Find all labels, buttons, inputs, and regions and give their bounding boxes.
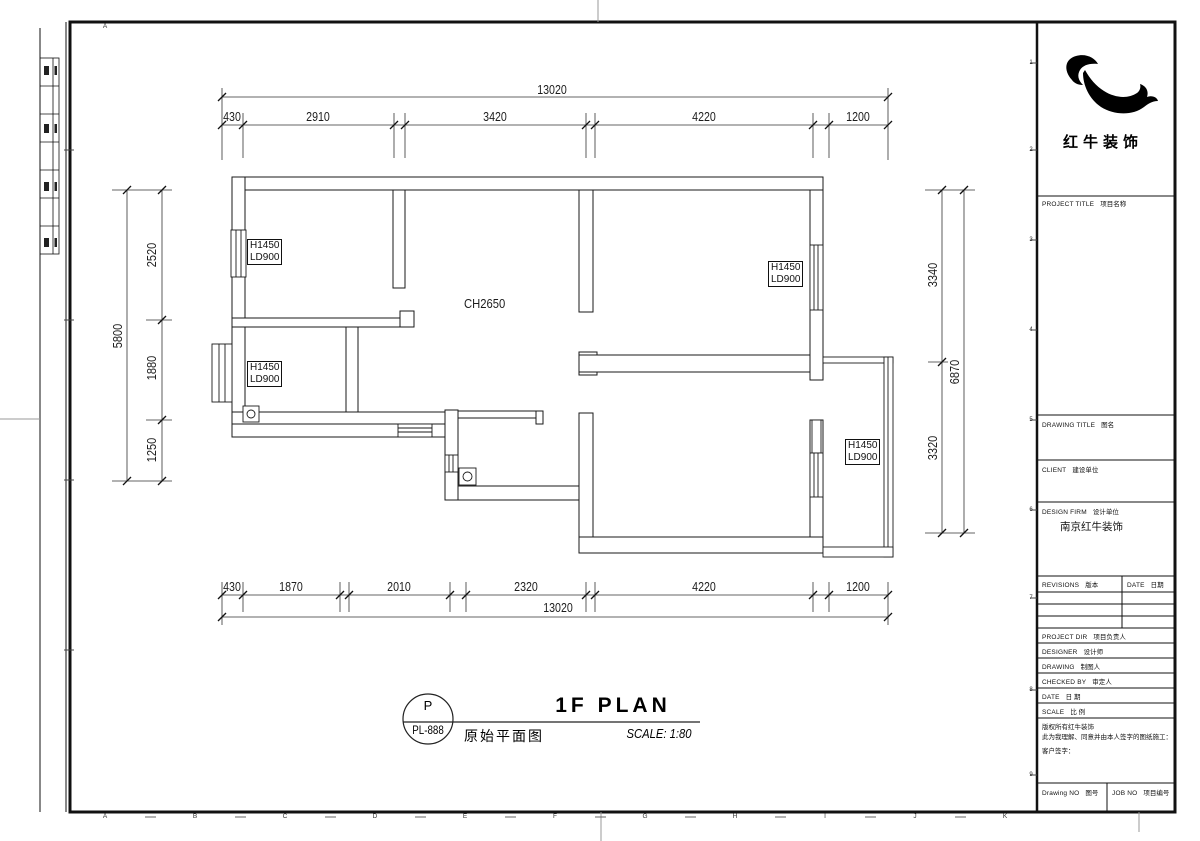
copyright-note-1: 版权所有红牛装饰 — [1042, 721, 1094, 731]
drawing-scale: SCALE: 1:80 — [626, 727, 691, 741]
grid-number: 3 — [1029, 237, 1032, 243]
field-client: CLIENT 建设单位 — [1042, 464, 1098, 474]
grid-letter: D — [373, 813, 378, 820]
dim-bottom-seg: 1200 — [846, 580, 870, 594]
binding-strip — [40, 58, 59, 254]
window-bay-left — [212, 344, 232, 402]
drawing-title-zh: 原始平面图 — [464, 726, 544, 746]
field-rev-date: DATE 日期 — [1127, 579, 1164, 589]
grid-number: 5 — [1029, 417, 1032, 423]
dim-left-seg: 1250 — [145, 438, 159, 462]
dim-right-seg: 3320 — [926, 436, 940, 460]
brand-name: 红牛装饰 — [1063, 131, 1143, 152]
dim-top-seg: 2910 — [306, 110, 330, 124]
window-tag: H1450 LD900 — [768, 261, 803, 287]
grid-letter: F — [553, 813, 557, 820]
copyright-note-2: 此为我理解、同意并由本人签字的图纸施工： — [1042, 731, 1172, 741]
field-scale: SCALE 比 例 — [1042, 706, 1085, 716]
grid-letter: K — [1003, 813, 1007, 820]
grid-letter: J — [913, 813, 916, 820]
plan-walls — [232, 177, 823, 553]
field-job-no: JOB NO 项目编号 — [1112, 787, 1169, 797]
title-block-lines — [1037, 196, 1175, 812]
grid-letter: C — [283, 813, 288, 820]
window-left-top — [231, 230, 246, 277]
field-designer: DESIGNER 设计师 — [1042, 646, 1103, 656]
field-design-firm: DESIGN FIRM 设计单位 — [1042, 506, 1119, 516]
dim-top-seg: 430 — [223, 110, 241, 124]
grid-number: 2 — [1029, 147, 1032, 153]
window-right-top — [810, 245, 823, 310]
dim-top-seg: 3420 — [483, 110, 507, 124]
grid-number: 9 — [1029, 772, 1032, 778]
drawing-sheet: 13020 430 2910 3420 4220 1200 430 1870 2… — [0, 0, 1200, 841]
window-tag: H1450 LD900 — [845, 439, 880, 465]
dim-top-seg: 4220 — [692, 110, 716, 124]
window-right-bottom-pane — [812, 420, 821, 453]
dim-top-overall: 13020 — [537, 83, 567, 97]
grid-number: 4 — [1029, 327, 1032, 333]
grid-number: 1 — [1029, 60, 1032, 66]
field-drawing-no: Drawing NO 图号 — [1042, 787, 1098, 797]
dim-bottom-overall: 13020 — [541, 601, 576, 615]
binding-strip-cell-marks — [44, 66, 57, 247]
window-tag: H1450 LD900 — [247, 361, 282, 387]
dim-bottom-seg: 2010 — [387, 580, 411, 594]
grid-letter: I — [824, 813, 826, 820]
grid-number: 6 — [1029, 507, 1032, 513]
field-project-dir: PROJECT DIR 项目负责人 — [1042, 631, 1126, 641]
dim-left-seg: 1880 — [145, 356, 159, 380]
field-revisions: REVISIONS 版本 — [1042, 579, 1098, 589]
sheet-tag: P — [424, 698, 433, 713]
grid-letter: B — [193, 813, 197, 820]
dim-bottom-seg: 4220 — [692, 580, 716, 594]
dim-left-overall: 5800 — [111, 324, 125, 348]
sheet-number: PL-888 — [412, 725, 444, 737]
dim-bottom-seg: 430 — [223, 580, 241, 594]
window-bottom — [398, 424, 432, 437]
dim-bottom-seg: 2320 — [514, 580, 538, 594]
window-right-bottom — [810, 453, 823, 497]
grid-letter: A — [103, 813, 107, 820]
field-checked-by: CHECKED BY 审定人 — [1042, 676, 1112, 686]
grid-letter-top: A — [103, 23, 107, 30]
grid-letter: E — [463, 813, 467, 820]
brand-logo-icon — [1066, 55, 1158, 113]
field-date: DATE 日 期 — [1042, 691, 1080, 701]
dim-right-seg: 3340 — [926, 263, 940, 287]
drawing-title-en: 1F PLAN — [555, 694, 671, 718]
grid-number: 7 — [1029, 595, 1032, 601]
grid-letter: G — [642, 813, 647, 820]
window-tag: H1450 LD900 — [247, 239, 282, 265]
grid-number: 8 — [1029, 687, 1032, 693]
dim-bottom-seg: 1870 — [279, 580, 303, 594]
design-firm-value: 南京红牛装饰 — [1060, 519, 1123, 534]
dim-right-overall: 6870 — [948, 360, 962, 384]
field-drawing: DRAWING 制图人 — [1042, 661, 1100, 671]
client-signature-label: 客户签字： — [1042, 745, 1075, 755]
dim-top-seg: 1200 — [846, 110, 870, 124]
grid-letter: H — [733, 813, 738, 820]
ceiling-height-label: CH2650 — [464, 297, 505, 311]
window-entry — [445, 455, 458, 472]
field-drawing-title: DRAWING TITLE 图名 — [1042, 419, 1114, 429]
field-project-title: PROJECT TITLE 项目名称 — [1042, 198, 1126, 208]
dim-left-seg: 2520 — [145, 243, 159, 267]
